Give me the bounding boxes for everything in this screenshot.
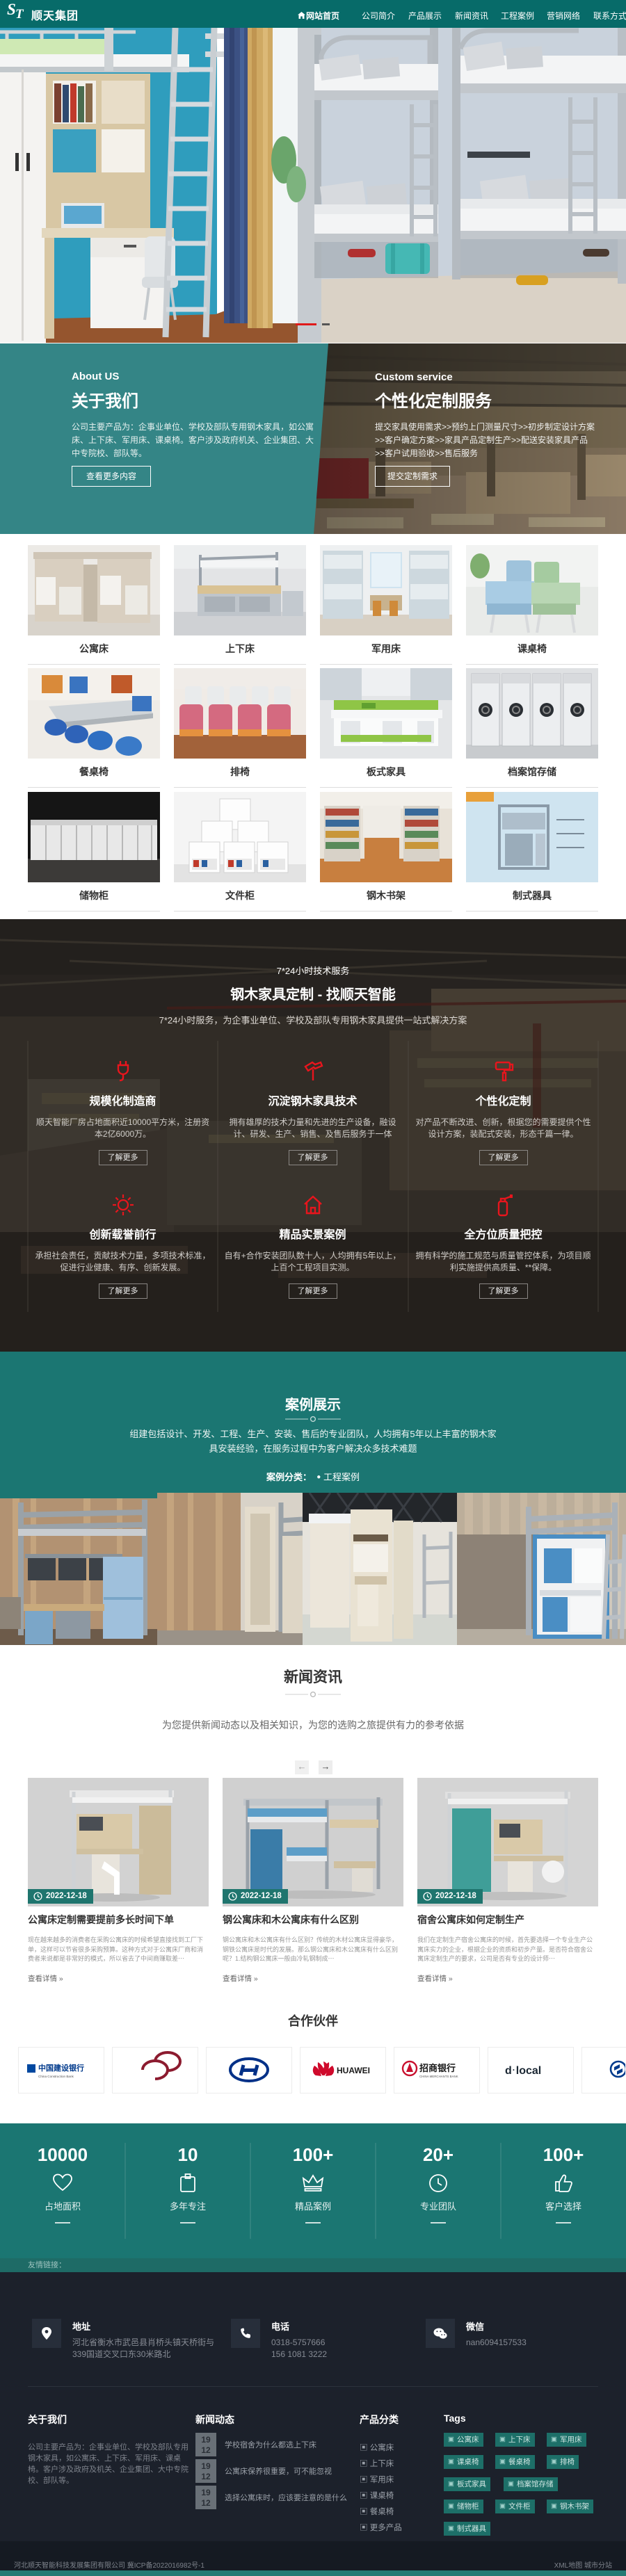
svg-text:中国建设银行: 中国建设银行 xyxy=(38,2063,84,2073)
svg-text:China Construction Bank: China Construction Bank xyxy=(38,2075,74,2078)
svg-text:d·local: d·local xyxy=(505,2065,541,2077)
svg-text:CHINA MERCHANTS BANK: CHINA MERCHANTS BANK xyxy=(419,2075,458,2078)
svg-text:招商银行: 招商银行 xyxy=(419,2063,456,2073)
svg-text:HUAWEI: HUAWEI xyxy=(337,2066,370,2075)
